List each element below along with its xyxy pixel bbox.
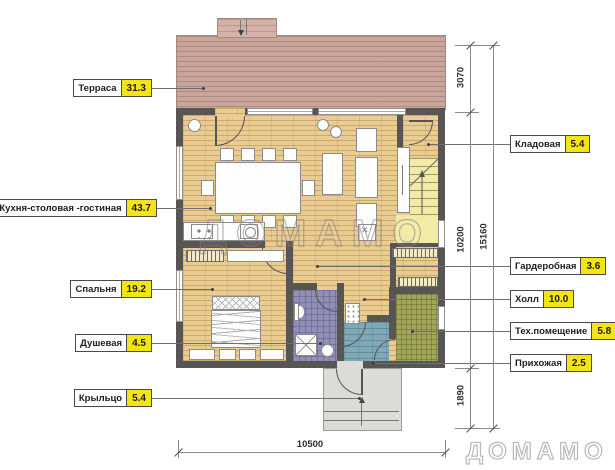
dim-terrace-height: 3070 <box>456 48 467 108</box>
room-area-badge: 4.5 <box>127 334 152 352</box>
label-entry: Прихожая 2.5 <box>510 354 592 372</box>
label-kitchen-living: Кухня-столовая -гостиная 43.7 <box>0 199 157 217</box>
bed-bench <box>219 349 236 360</box>
wall-bedroom-north <box>183 241 265 248</box>
dim-line-width <box>178 452 445 453</box>
room-name: Кухня-столовая -гостиная <box>0 199 127 217</box>
window-top-1 <box>247 108 313 115</box>
dim-ext-tick <box>445 440 446 458</box>
terrace-step-arrow <box>238 30 244 36</box>
toilet-tank <box>294 303 299 321</box>
dim-ext-line <box>455 112 479 113</box>
bedroom-wardrobe-hatch <box>186 250 224 262</box>
dining-chair <box>302 180 315 196</box>
dim-ext-tick <box>178 440 179 458</box>
window-left-1 <box>176 146 183 200</box>
room-area-badge: 31.3 <box>122 79 152 97</box>
bedroom-shelf <box>227 250 284 262</box>
dim-total-height: 15160 <box>479 207 490 267</box>
leader-terrace <box>152 88 204 89</box>
bed-headboard <box>212 296 260 310</box>
dim-porch-height: 1890 <box>456 366 467 426</box>
window-right-2 <box>438 306 445 330</box>
dim-line-segments <box>470 45 471 428</box>
room-area-badge: 5.4 <box>566 135 591 153</box>
leader-entry <box>374 363 510 364</box>
dining-table <box>215 162 301 214</box>
dim-line-total <box>493 45 494 428</box>
wardrobe-hatch <box>398 277 438 287</box>
bedroom-cabinet <box>260 349 284 360</box>
coffee-table <box>322 153 343 195</box>
room-area-badge: 43.7 <box>127 199 157 217</box>
armchair <box>356 128 377 152</box>
room-name: Кладовая <box>510 135 566 153</box>
room-name: Тех.помещение <box>510 322 592 340</box>
room-name: Гардеробная <box>510 257 581 275</box>
wall-tech-north <box>389 287 438 294</box>
bedroom-door-opening <box>265 241 286 248</box>
pouf <box>317 119 329 131</box>
floor-plan: ✕ Терраса 31.3 Кухня-столовая -гостиная … <box>0 0 615 470</box>
dining-chair <box>262 148 276 161</box>
dining-chair <box>241 148 255 161</box>
tv-cabinet <box>397 147 410 213</box>
window-top-2 <box>318 108 406 115</box>
label-storage: Кладовая 5.4 <box>510 135 590 153</box>
staircase-cut-line <box>408 156 440 218</box>
leader-bedroom <box>152 289 213 290</box>
staircase-landing <box>396 215 438 243</box>
dining-chair <box>283 148 297 161</box>
hall-cabinet <box>345 303 360 324</box>
room-area-badge: 2.5 <box>567 354 592 372</box>
terrace-step-divider <box>246 19 247 35</box>
washbasin <box>321 344 334 357</box>
leader-tech <box>413 331 510 332</box>
shower-cabin <box>295 334 317 356</box>
entrance-door-leaf <box>361 369 363 395</box>
entrance-door-opening <box>337 361 363 369</box>
window-right-1 <box>438 220 445 248</box>
label-shower: Душевая 4.5 <box>75 334 152 352</box>
terrace-door-leaf <box>215 116 217 145</box>
room-name: Спальня <box>70 280 121 298</box>
sink-bowl <box>245 227 256 238</box>
dining-chair <box>201 180 214 196</box>
label-wardrobe: Гардеробная 3.6 <box>510 257 606 275</box>
tv-screen <box>402 165 403 195</box>
room-area-badge: 19.2 <box>122 280 152 298</box>
dining-chair <box>283 215 297 228</box>
room-name: Душевая <box>75 334 127 352</box>
label-bedroom: Спальня 19.2 <box>70 280 152 298</box>
dining-chair <box>220 148 234 161</box>
room-name: Крыльцо <box>74 389 127 407</box>
label-tech-room: Тех.помещение 5.8 <box>510 322 615 340</box>
label-terrace: Терраса 31.3 <box>73 79 152 97</box>
room-name: Терраса <box>73 79 121 97</box>
window-left-2 <box>176 270 183 322</box>
pouf <box>330 126 342 138</box>
watermark-corner: ДОМАМО <box>466 438 608 466</box>
label-porch: Крыльцо 5.4 <box>74 389 152 407</box>
tech-room-floor <box>396 294 438 361</box>
terrace-area <box>176 35 446 110</box>
appliance-mark: ✕ <box>361 225 369 236</box>
room-area-badge: 5.4 <box>127 389 152 407</box>
label-hall: Холл 10.0 <box>510 290 574 308</box>
dim-total-width: 10500 <box>280 439 340 450</box>
wall-shower-north <box>293 283 317 290</box>
room-area-badge: 5.8 <box>592 322 615 340</box>
room-name: Прихожая <box>510 354 567 372</box>
plant-pot <box>188 119 201 132</box>
sofa <box>355 157 378 198</box>
room-area-badge: 10.0 <box>544 290 574 308</box>
terrace-door-opening <box>215 108 245 116</box>
leader-porch <box>152 398 360 399</box>
bed-bench <box>239 349 256 360</box>
wardrobe-hatch <box>392 248 438 258</box>
wall-wardrobe-south <box>390 243 438 247</box>
stove <box>191 224 213 239</box>
leader-kitchen <box>157 208 211 209</box>
porch-arrow-shaft <box>361 402 362 426</box>
bedroom-cabinet <box>189 349 215 360</box>
leader-hall <box>365 299 510 300</box>
room-name: Холл <box>510 290 544 308</box>
terrace-step <box>217 18 277 38</box>
wall-tech-west <box>389 287 396 339</box>
wall-storage-stub <box>397 115 403 147</box>
wall-entry-north <box>367 315 389 322</box>
leader-shower <box>152 343 321 344</box>
dim-house-height: 10200 <box>456 210 467 270</box>
room-area-badge: 3.6 <box>581 257 606 275</box>
